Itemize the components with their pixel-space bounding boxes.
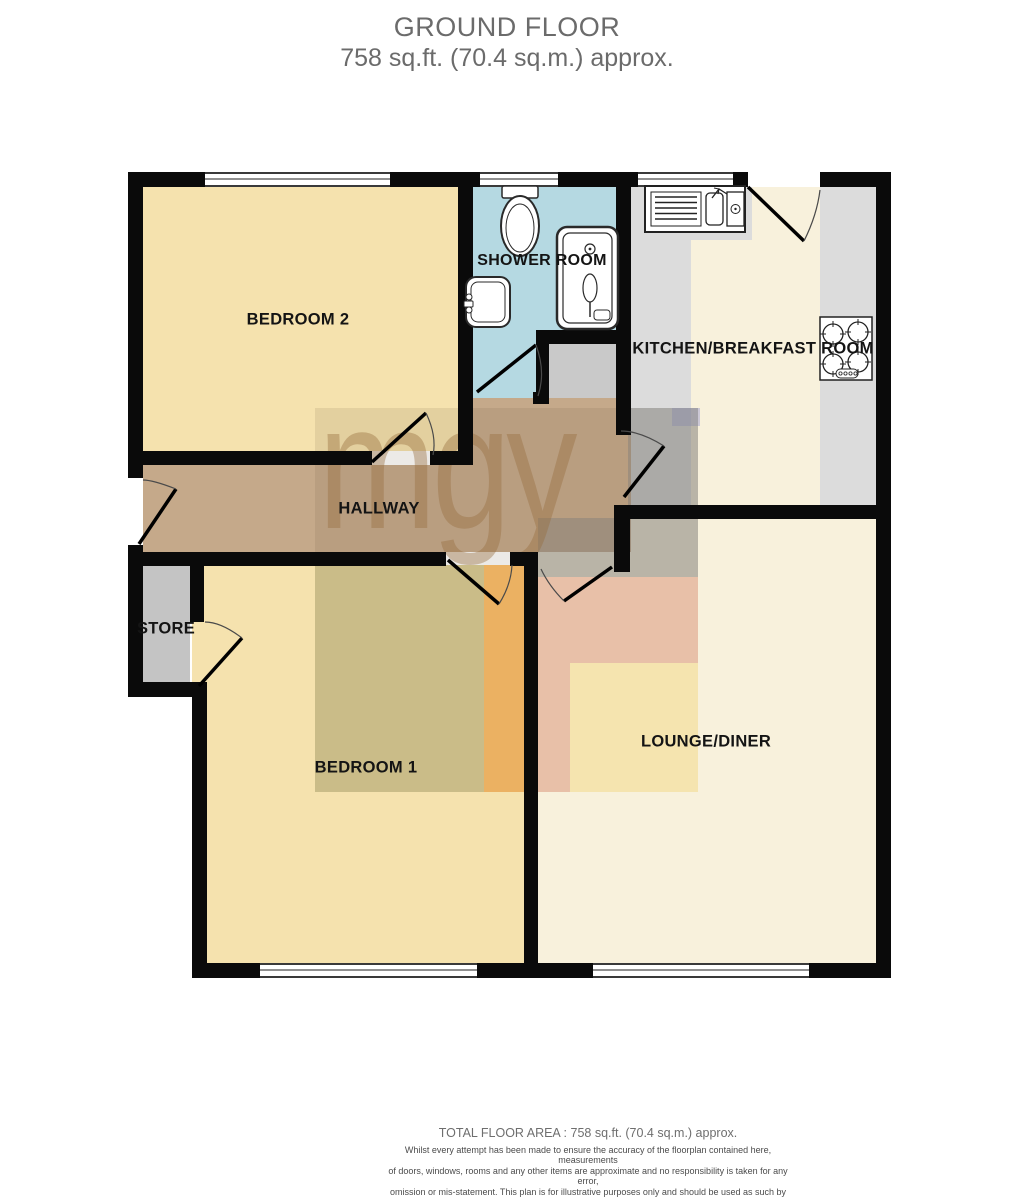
wall-hallway-bottom [143, 552, 446, 566]
wall-exterior-right [876, 172, 891, 978]
wall-lounge-top [616, 505, 876, 519]
watermark-gray-block-a [628, 408, 698, 518]
floor-title: GROUND FLOOR [0, 12, 1014, 43]
wall-exterior-left-lower [128, 545, 143, 690]
window-lounge [593, 963, 809, 978]
label-store: STORE [137, 620, 195, 639]
window-bedroom2 [205, 172, 390, 187]
wall-shower-kitchen [616, 187, 631, 435]
label-bedroom1: BEDROOM 1 [315, 759, 418, 778]
page-title: GROUND FLOOR 758 sq.ft. (70.4 sq.m.) app… [0, 12, 1014, 73]
footer: TOTAL FLOOR AREA : 758 sq.ft. (70.4 sq.m… [388, 1126, 788, 1200]
disclaimer-line: Whilst every attempt has been made to en… [388, 1145, 788, 1166]
floorplan-canvas: GROUND FLOOR 758 sq.ft. (70.4 sq.m.) app… [0, 0, 1014, 1200]
window-pane-line [260, 969, 477, 971]
total-floor-area: TOTAL FLOOR AREA : 758 sq.ft. (70.4 sq.m… [388, 1126, 788, 1140]
disclaimer-line: omission or mis-statement. This plan is … [388, 1187, 788, 1200]
window-bedroom1 [260, 963, 477, 978]
kitchen-counter-sink [631, 187, 752, 240]
window-pane-line [638, 178, 733, 180]
label-lounge: LOUNGE/DINER [641, 733, 771, 752]
wall-bedroom2-bottom [143, 451, 372, 465]
disclaimer-line: of doors, windows, rooms and any other i… [388, 1166, 788, 1187]
wall-bedroom1-lounge [524, 552, 538, 963]
window-shower [480, 172, 558, 187]
wall-exterior-left-upper [128, 172, 143, 478]
window-pane-line [593, 969, 809, 971]
wall-store-right [190, 565, 204, 622]
wall-shower-void-left [536, 330, 549, 398]
window-pane-line [205, 178, 390, 180]
watermark-logo-text: mgy [318, 378, 573, 556]
floor-area-subtitle: 758 sq.ft. (70.4 sq.m.) approx. [0, 44, 1014, 73]
wall-bedroom2-right [458, 187, 473, 465]
wall-lounge-door-stub [614, 505, 630, 572]
wall-shower-door-stub [533, 392, 549, 404]
label-bedroom2: BEDROOM 2 [247, 311, 350, 330]
label-hallway: HALLWAY [338, 500, 419, 519]
window-kitchen [638, 172, 733, 187]
label-kitchen: KITCHEN/BREAKFAST ROOM [632, 340, 873, 359]
label-shower: SHOWER ROOM [477, 252, 607, 270]
wall-bedroom1-left [192, 682, 207, 978]
watermark-yellow-block [570, 663, 698, 792]
window-pane-line [480, 178, 558, 180]
